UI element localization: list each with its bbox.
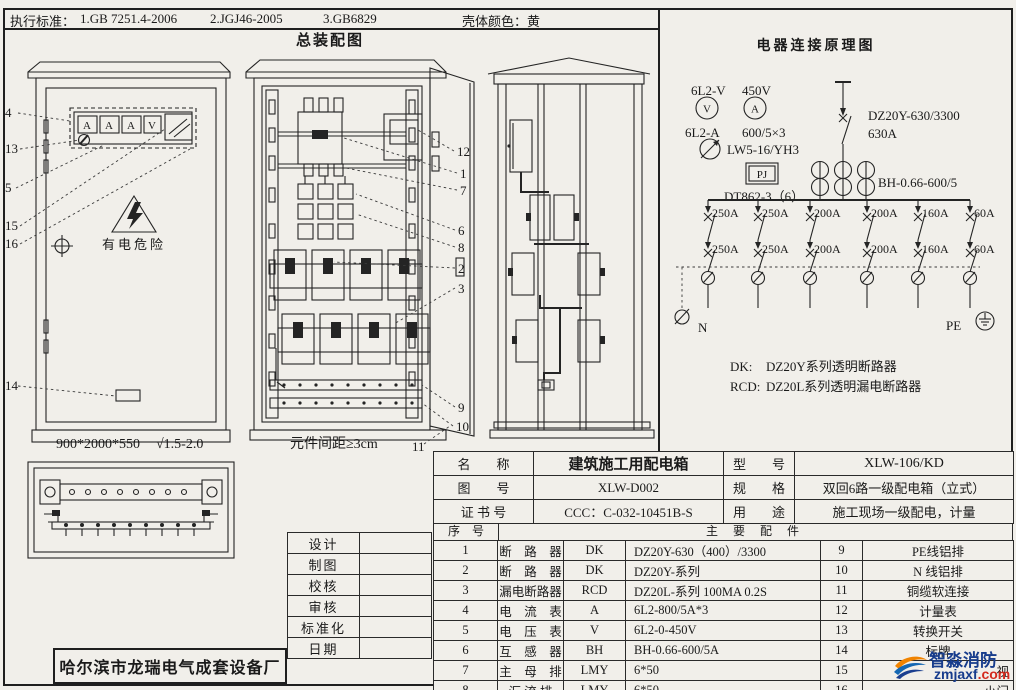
part-spec: BH-0.66-600/5A (626, 641, 821, 661)
ct-ratio: 600/5×3 (742, 125, 785, 140)
model-label: 型 号 (724, 452, 795, 476)
sign-label: 制图 (288, 554, 360, 575)
manufacturer-name: 哈尔滨市龙瑞电气成套设备厂 (59, 654, 280, 678)
callout-5: 5 (5, 180, 12, 195)
part-no: 7 (434, 661, 498, 681)
nameplate-slot (116, 390, 140, 401)
ammeter-model: 6L2-A (685, 125, 720, 140)
sign-value-empty (360, 533, 432, 554)
rcd-note-label: RCD: (730, 379, 760, 394)
rating-label: 250A (762, 206, 789, 220)
parts-header-row: 序 号 主 要 配 件 (433, 524, 1013, 540)
drawing-sheet: 执行标准： 1.GB 7251.4-2006 2.JGJ46-2005 3.GB… (0, 0, 1016, 690)
table-row: 标准化 (288, 617, 432, 638)
part-no: 13 (821, 621, 863, 641)
rating-label: 60A (974, 206, 995, 220)
rating-label: 200A (871, 206, 898, 220)
part-name: 铜缆软连接 (863, 581, 1014, 601)
wiring-schematic: 电器连接原理图 6L2-V 450V V A 6L2-A 600/5×3 LW5… (658, 10, 1014, 452)
callout-4: 4 (5, 105, 12, 120)
part-spec: DZ20Y-系列 (626, 561, 821, 581)
spec-label: 规 格 (724, 476, 795, 500)
name-value: 建筑施工用配电箱 (534, 452, 724, 476)
part-name: N 线铝排 (863, 561, 1014, 581)
part-code: LMY (564, 681, 626, 690)
right-callouts: 12 1 7 6 8 2 3 9 10 11 (334, 130, 470, 454)
meter-panel: A A A V (70, 108, 196, 148)
bottom-busbars (270, 348, 422, 408)
table-row: 4电 流 表 A6L2-800/5A*3 12计量表 (434, 601, 1014, 621)
table-row: 审核 (288, 596, 432, 617)
part-no: 4 (434, 601, 498, 621)
table-row: 2断 路 器 DKDZ20Y-系列 10N 线铝排 (434, 561, 1014, 581)
main-breaker-drawing (298, 98, 343, 176)
part-no: 1 (434, 541, 498, 561)
seq-label: 序 号 (434, 524, 499, 540)
sign-label: 设计 (288, 533, 360, 554)
part-name: 电 压 表 (498, 621, 564, 641)
use-label: 用 途 (724, 500, 795, 524)
callout-12: 12 (457, 144, 470, 159)
callout-3: 3 (458, 281, 465, 296)
cabinet-open-view: 12 1 7 6 8 2 3 9 10 11 元件 (246, 60, 474, 454)
sign-label: 审核 (288, 596, 360, 617)
callout-10: 10 (456, 419, 469, 434)
ct-model: BH-0.66-600/5 (878, 175, 957, 190)
rating-label: 60A (974, 242, 995, 256)
warning-triangle-icon (112, 196, 156, 232)
callout-9: 9 (458, 400, 465, 415)
callout-7: 7 (460, 183, 467, 198)
rating-label: 250A (712, 206, 739, 220)
part-name: 断 路 器 (498, 541, 564, 561)
info-table: 名 称 建筑施工用配电箱 型 号 XLW-106/KD 图 号 XLW-D002… (433, 451, 1014, 524)
watermark-domain: zmjaxf (934, 666, 978, 682)
manufacturer-box: 哈尔滨市龙瑞电气成套设备厂 (53, 648, 287, 684)
part-spec: 6*50 (626, 681, 821, 690)
part-no: 11 (821, 581, 863, 601)
cabinet-size: 900*2000*550 (56, 437, 140, 452)
part-no: 5 (434, 621, 498, 641)
sign-value-empty (360, 617, 432, 638)
rating-label: 250A (762, 242, 789, 256)
callout-13: 13 (5, 141, 18, 156)
callout-14: 14 (5, 378, 19, 393)
part-code: DK (564, 561, 626, 581)
part-name: 电 流 表 (498, 601, 564, 621)
pj-label: PJ (757, 169, 768, 181)
warning-text: 有电危险 (102, 237, 166, 252)
part-no: 3 (434, 581, 498, 601)
cabinet-front-view: A A A V 有电危险 (5, 62, 230, 452)
spec-value: 双回6路一级配电箱（立式） (795, 476, 1014, 500)
ammeter-letter: A (751, 104, 759, 116)
current-transformers-icon (812, 162, 875, 201)
ammeter-glyph: A (83, 120, 91, 132)
part-name: 互 感 器 (498, 641, 564, 661)
part-code: RCD (564, 581, 626, 601)
cert-label: 证 书 号 (434, 500, 534, 524)
part-name: PE线铝排 (863, 541, 1014, 561)
sheet-finish: √1.5-2.0 (156, 437, 203, 452)
table-row: 日期 (288, 638, 432, 659)
sign-value-empty (360, 554, 432, 575)
part-name: 断 路 器 (498, 561, 564, 581)
drawing-no-label: 图 号 (434, 476, 534, 500)
part-spec: DZ20Y-630（400）/3300 (626, 541, 821, 561)
callout-2: 2 (458, 261, 465, 276)
part-code: A (564, 601, 626, 621)
part-name: 主 母 排 (498, 661, 564, 681)
branch-breakers-row1 (270, 250, 422, 300)
earth-symbol-icon (976, 312, 994, 330)
part-name: 汇 流 排 (498, 681, 564, 690)
part-code: V (564, 621, 626, 641)
part-no: 15 (821, 661, 863, 681)
rating-label: 200A (871, 242, 898, 256)
ammeter-glyph: A (127, 120, 135, 132)
table-row: 制图 (288, 554, 432, 575)
ammeter-glyph: A (105, 120, 113, 132)
parts-title: 主 要 配 件 (499, 524, 1012, 540)
sign-label: 日期 (288, 638, 360, 659)
standard-1: 1.GB 7251.4-2006 (80, 11, 177, 27)
busbar-detail-drawing (28, 462, 234, 558)
part-no: 2 (434, 561, 498, 581)
voltmeter-letter: V (703, 104, 711, 116)
part-code: BH (564, 641, 626, 661)
part-spec: DZ20L-系列 100MA 0.2S (626, 581, 821, 601)
ground-cross-icon (51, 235, 73, 257)
open-door-drawing (430, 68, 474, 436)
voltmeter-model: 6L2-V (691, 83, 726, 98)
n-label: N (698, 320, 708, 335)
part-name: 漏电断路器 (498, 581, 564, 601)
sign-value-empty (360, 596, 432, 617)
voltmeter-glyph: V (148, 120, 156, 132)
table-row: 3漏电断路器 RCDDZ20L-系列 100MA 0.2S 11铜缆软连接 (434, 581, 1014, 601)
sign-value-empty (360, 638, 432, 659)
rating-label: 200A (814, 242, 841, 256)
drawing-no-value: XLW-D002 (534, 476, 724, 500)
standards-header: 执行标准： 1.GB 7251.4-2006 2.JGJ46-2005 3.GB… (5, 10, 658, 30)
callout-1: 1 (460, 166, 467, 181)
table-row: 设计 (288, 533, 432, 554)
table-row: 5电 压 表 V6L2-0-450V 13转换开关 (434, 621, 1014, 641)
sign-value-empty (360, 575, 432, 596)
rating-label: 200A (814, 206, 841, 220)
main-breaker-symbol (835, 82, 851, 162)
neutral-symbol-icon (675, 309, 689, 324)
use-value: 施工现场一级配电，计量 (795, 500, 1014, 524)
dk-note-text: DZ20Y系列透明断路器 (766, 359, 897, 374)
spacing-note: 元件间距≥3cm (290, 436, 378, 452)
rating-label: 160A (922, 206, 949, 220)
sign-label: 校核 (288, 575, 360, 596)
model-value: XLW-106/KD (795, 452, 1014, 476)
watermark-tld: .com (978, 666, 1011, 682)
signature-table: 设计 制图 校核 审核 标准化 日期 (287, 532, 432, 659)
part-spec: 6L2-0-450V (626, 621, 821, 641)
rating-label: 160A (922, 242, 949, 256)
sign-label: 标准化 (288, 617, 360, 638)
table-row: 校核 (288, 575, 432, 596)
part-code: DK (564, 541, 626, 561)
main-breaker-model: DZ20Y-630/3300 (868, 108, 960, 123)
name-label: 名 称 (434, 452, 534, 476)
part-spec: 6*50 (626, 661, 821, 681)
watermark-logo-icon (893, 650, 929, 680)
standard-2: 2.JGJ46-2005 (210, 11, 283, 27)
callout-11: 11 (412, 439, 425, 454)
part-code: LMY (564, 661, 626, 681)
pe-label: PE (946, 318, 961, 333)
main-breaker-rating: 630A (868, 126, 898, 141)
callout-16: 16 (5, 236, 19, 251)
callout-8: 8 (458, 240, 465, 255)
part-name: 计量表 (863, 601, 1014, 621)
part-no: 10 (821, 561, 863, 581)
rating-label: 250A (712, 242, 739, 256)
rcd-note-text: DZ20L系列透明漏电断路器 (766, 379, 921, 394)
meter-window-drawing (384, 114, 422, 160)
cert-value: CCC：C-032-10451B-S (534, 500, 724, 524)
terminal-cluster (298, 176, 353, 239)
part-spec: 6L2-800/5A*3 (626, 601, 821, 621)
part-no: 12 (821, 601, 863, 621)
changeover-model: LW5-16/YH3 (727, 142, 799, 157)
part-name: 转换开关 (863, 621, 1014, 641)
part-no: 16 (821, 681, 863, 690)
callout-15: 15 (5, 218, 18, 233)
standard-3: 3.GB6829 (323, 11, 377, 27)
part-no: 9 (821, 541, 863, 561)
table-row: 1断 路 器 DKDZ20Y-630（400）/3300 9PE线铝排 (434, 541, 1014, 561)
changeover-switch-icon (700, 139, 720, 159)
volt-range: 450V (742, 83, 772, 98)
part-no: 6 (434, 641, 498, 661)
energy-meter-model: DT862-3（6） (724, 189, 804, 204)
dk-note-label: DK: (730, 359, 752, 374)
callout-6: 6 (458, 223, 465, 238)
schematic-title: 电器连接原理图 (757, 37, 876, 54)
part-no: 14 (821, 641, 863, 661)
cabinet-side-view (488, 58, 654, 438)
energy-meter-icon: PJ (746, 163, 778, 184)
part-no: 8 (434, 681, 498, 690)
branch-breakers-row2 (278, 314, 430, 364)
watermark: 智淼消防 zmjaxf.com (893, 646, 1013, 688)
